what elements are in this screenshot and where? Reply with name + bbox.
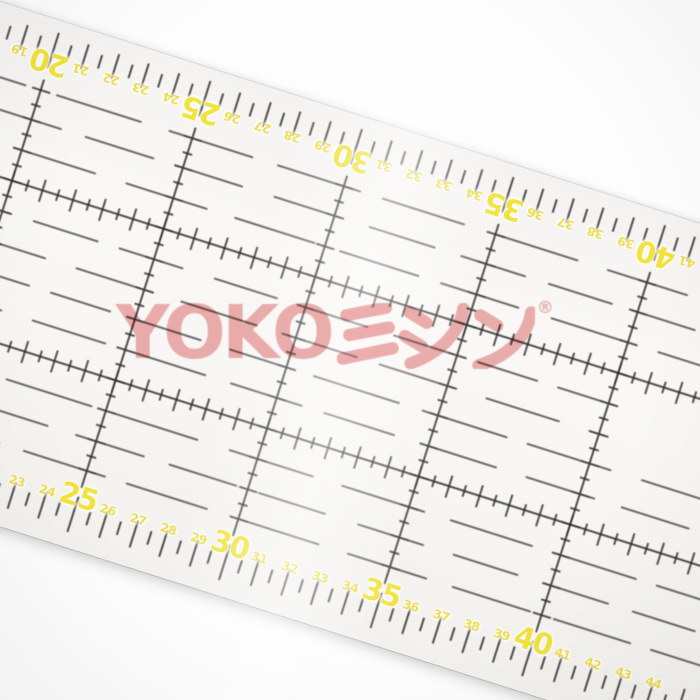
product-photo: 1920212223242526272829303132333435363738…	[0, 0, 700, 700]
